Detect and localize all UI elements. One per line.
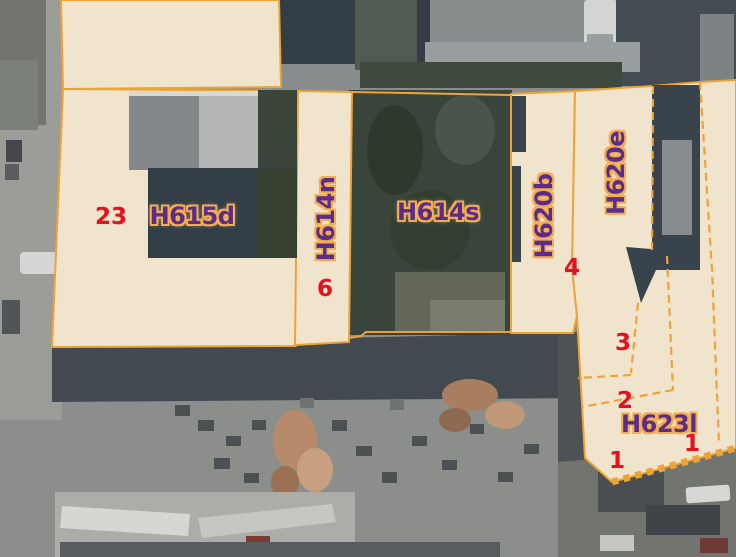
- house-number: 3: [615, 330, 631, 356]
- house-number: 23: [95, 204, 127, 230]
- house-number: 1: [609, 448, 625, 474]
- parcel-label-h620b: H620b: [530, 174, 558, 259]
- parcel-label-h620e: H620e: [602, 131, 630, 215]
- map-viewport[interactable]: H615d H614n H614s H620b H620e H623l 23 6…: [0, 0, 736, 557]
- house-number: 1: [684, 431, 700, 457]
- trees-top: [355, 0, 417, 70]
- parcel-label-h615d: H615d: [150, 202, 235, 230]
- house-number: 6: [317, 276, 333, 302]
- map-canvas: [0, 0, 736, 557]
- parcel-label-h614n: H614n: [312, 177, 340, 262]
- hedge-top: [360, 62, 622, 88]
- parcel-label-h614s: H614s: [397, 198, 479, 226]
- house-number: 2: [617, 388, 633, 414]
- house-number: 4: [564, 255, 580, 281]
- parcel-north[interactable]: [61, 0, 281, 89]
